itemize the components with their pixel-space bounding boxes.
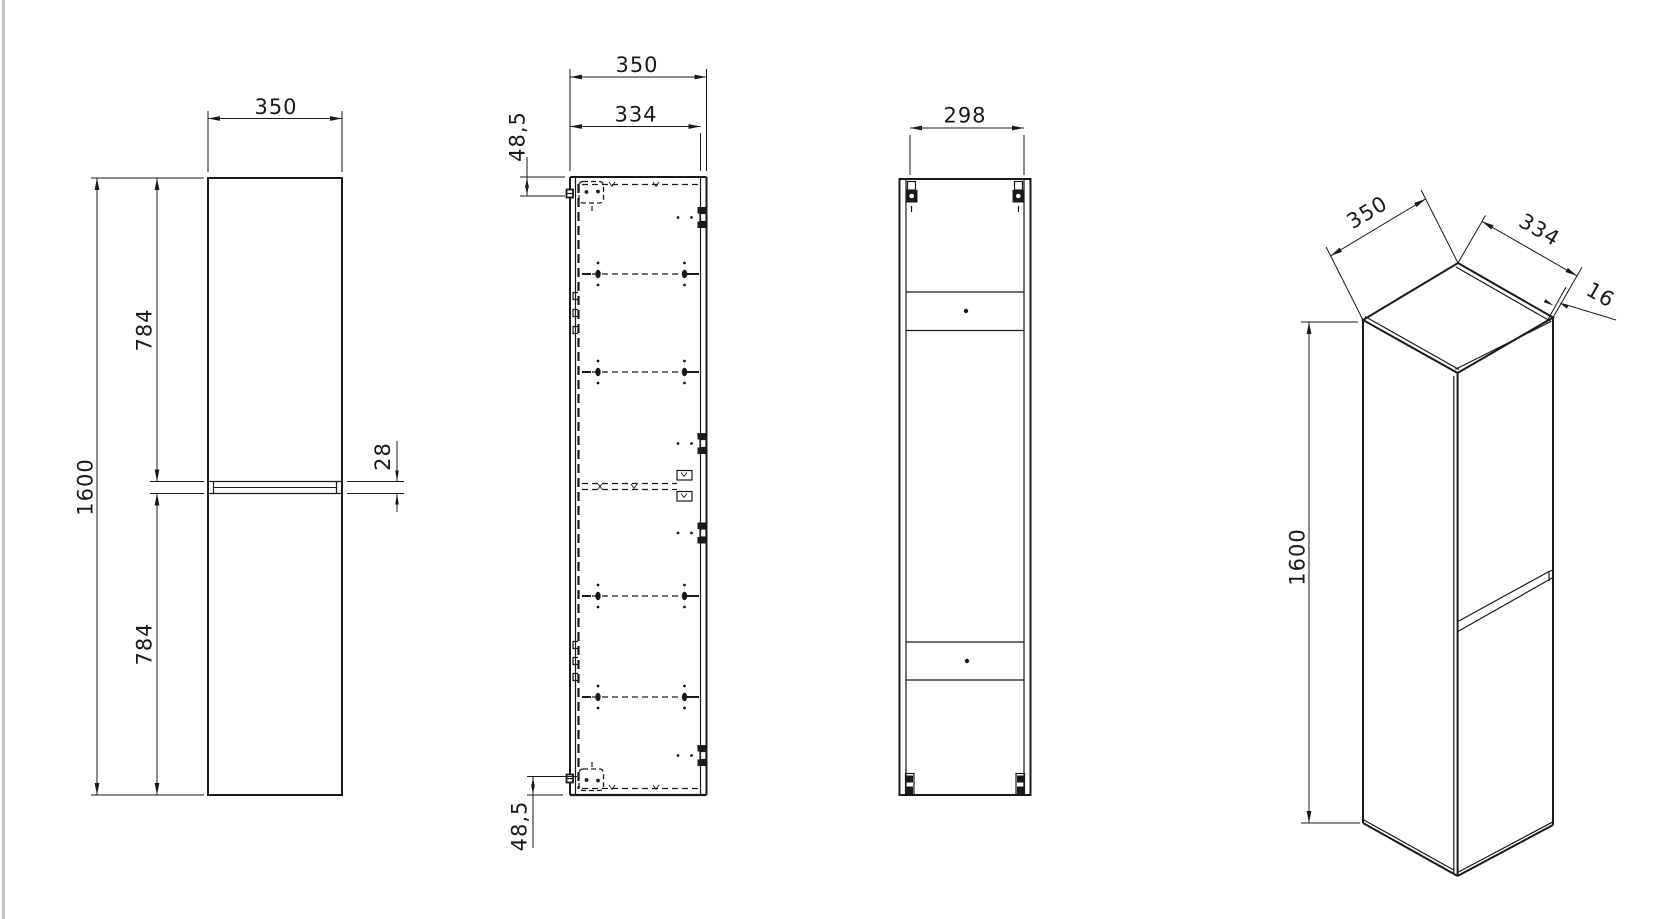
dim-front-width: 350 bbox=[208, 95, 342, 172]
dim-label-upper-door: 784 bbox=[133, 308, 157, 351]
dim-label-front-width: 350 bbox=[254, 95, 297, 119]
rear-view: 298 bbox=[900, 104, 1031, 796]
dim-label-mounting-span: 298 bbox=[943, 104, 986, 128]
dim-label-front-height: 1600 bbox=[74, 458, 98, 515]
section-view: 350 334 48,5 48,5 bbox=[506, 53, 707, 851]
dim-iso-height: 1600 bbox=[1286, 322, 1361, 823]
dim-iso-depth: 350 bbox=[1326, 190, 1458, 320]
dim-iso-panel-thickness: 16 bbox=[1544, 277, 1619, 323]
front-view: 350 1600 784 784 28 bbox=[74, 95, 405, 795]
dim-label-iso-panel-thickness: 16 bbox=[1582, 277, 1619, 312]
drawing-page: 350 1600 784 784 28 bbox=[0, 0, 1670, 919]
dim-label-hinge-offset-top: 48,5 bbox=[506, 111, 530, 162]
dim-label-hinge-offset-bottom: 48,5 bbox=[508, 801, 532, 852]
bottom-bracket bbox=[1016, 774, 1025, 795]
back-rail bbox=[906, 292, 1024, 331]
dim-label-door-gap: 28 bbox=[371, 442, 395, 471]
technical-drawing-canvas: 350 1600 784 784 28 bbox=[0, 0, 1670, 919]
dim-label-section-inner-depth: 334 bbox=[614, 103, 657, 127]
dim-label-iso-height: 1600 bbox=[1286, 528, 1310, 585]
hanging-bracket bbox=[1013, 182, 1025, 213]
dim-hinge-offset-top: 48,5 bbox=[506, 111, 566, 196]
dim-hinge-offset-bottom: 48,5 bbox=[508, 777, 578, 852]
dim-label-iso-depth: 350 bbox=[1343, 191, 1392, 234]
dim-iso-door-width: 334 bbox=[1458, 209, 1582, 318]
dim-section-inner-depth: 334 bbox=[570, 103, 701, 172]
dim-door-gap: 28 bbox=[347, 441, 404, 512]
dim-mounting-span: 298 bbox=[910, 104, 1024, 176]
dim-label-section-outer-depth: 350 bbox=[615, 53, 658, 77]
perspective-view: 1600 350 334 16 bbox=[1286, 190, 1619, 876]
dim-label-lower-door: 784 bbox=[133, 622, 157, 665]
dim-lower-door: 784 bbox=[133, 494, 205, 796]
dim-upper-door: 784 bbox=[133, 178, 205, 482]
hanging-bracket bbox=[906, 182, 918, 213]
bottom-bracket bbox=[906, 774, 915, 795]
back-rail bbox=[906, 642, 1024, 680]
dim-front-height: 1600 bbox=[74, 178, 205, 795]
